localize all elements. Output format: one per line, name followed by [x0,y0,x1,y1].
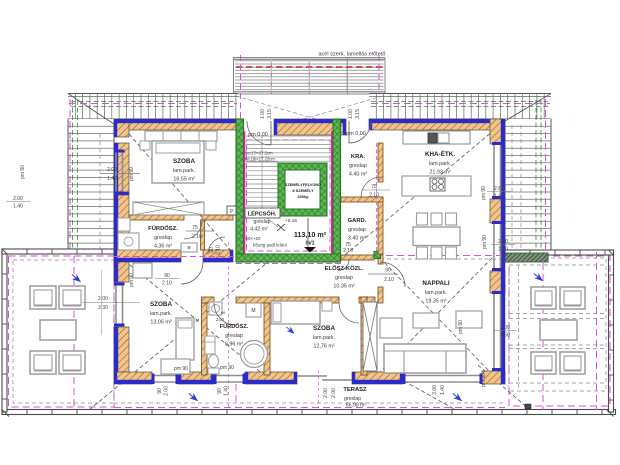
svg-text:+6.15: +6.15 [285,218,297,224]
svg-text:greslap: greslap [349,163,367,169]
svg-text:GARD.: GARD. [348,218,367,224]
svg-text:lam.park.: lam.park. [429,161,451,167]
svg-text:6,96 m²: 6,96 m² [225,342,243,348]
svg-text:KHA-ÉTK.: KHA-ÉTK. [425,149,455,158]
svg-text:2.00: 2.00 [164,386,170,396]
svg-text:1.40: 1.40 [224,386,230,396]
svg-text:2.00: 2.00 [331,388,337,398]
svg-text:2.30: 2.30 [98,305,108,311]
svg-text:2.80: 2.80 [498,239,508,245]
svg-text:fel:18i×17,22cm: fel:18i×17,22cm [245,157,275,162]
svg-text:3.00: 3.00 [500,325,510,331]
svg-text:90: 90 [157,388,163,394]
svg-text:greslap: greslap [225,333,243,339]
svg-text:90: 90 [385,268,391,274]
svg-text:FÜRDŐSZ.: FÜRDŐSZ. [148,225,178,232]
svg-text:pm 90: pm 90 [220,365,234,371]
svg-text:2.00: 2.00 [98,296,108,302]
svg-text:19.35 m²: 19.35 m² [425,299,446,305]
svg-text:3.15: 3.15 [267,109,273,119]
svg-text:M: M [251,308,255,314]
svg-text:12,76 m²: 12,76 m² [313,344,334,350]
svg-text:Ih/1: Ih/1 [306,241,315,247]
svg-text:pm 90: pm 90 [174,366,188,372]
svg-text:lam.park.: lam.park. [313,335,335,341]
svg-text:8 SZEMÉLY: 8 SZEMÉLY [292,188,314,193]
svg-text:1.40: 1.40 [494,194,504,200]
svg-text:lam.park.: lam.park. [173,168,195,174]
svg-text:2.10: 2.10 [369,193,379,199]
svg-text:75: 75 [371,184,377,190]
svg-text:10.35 m²: 10.35 m² [333,284,354,290]
svg-text:1.00: 1.00 [260,109,266,119]
svg-text:pm 90: pm 90 [20,165,26,179]
svg-text:pm 90: pm 90 [458,320,464,334]
svg-text:90: 90 [217,388,223,394]
svg-text:4,42 m²: 4,42 m² [250,227,268,233]
svg-text:pm 90: pm 90 [129,167,135,181]
svg-text:90: 90 [209,247,215,253]
svg-text:FÜRDŐSZ.: FÜRDŐSZ. [220,323,249,330]
svg-text:ELŐSZ-KÖZL.: ELŐSZ-KÖZL. [325,265,364,272]
svg-text:3.00: 3.00 [432,385,438,395]
svg-text:2.10: 2.10 [216,245,222,255]
svg-text:2.10: 2.10 [162,281,172,287]
svg-text:LÉPCSŐH.: LÉPCSŐH. [248,210,277,218]
svg-text:1.00: 1.00 [348,109,354,119]
svg-text:greslap: greslap [154,235,172,241]
svg-text:90: 90 [164,273,170,279]
svg-text:2.00: 2.00 [107,167,117,173]
svg-text:2.00: 2.00 [323,388,329,398]
svg-text:lam.park.: lam.park. [425,290,447,296]
svg-text:pm 90: pm 90 [481,373,487,387]
svg-text:2.10: 2.10 [384,277,394,283]
svg-text:2.50: 2.50 [500,333,510,339]
svg-text:KRA.: KRA. [351,154,366,160]
svg-text:2.60: 2.60 [494,186,504,192]
svg-text:113,10 m²: 113,10 m² [294,230,327,239]
svg-text:lam.park.: lam.park. [150,311,172,317]
svg-text:kőszig padl.feláró: kőszig padl.feláró [253,243,288,248]
svg-text:pm 90: pm 90 [482,235,488,249]
svg-text:SZOBA: SZOBA [150,301,172,308]
svg-text:1.40: 1.40 [107,176,117,182]
svg-text:NAPPALI: NAPPALI [422,280,449,287]
svg-text:16,55 m²: 16,55 m² [173,177,194,183]
svg-text:greslap: greslap [335,275,353,281]
svg-text:1.40: 1.40 [440,385,446,395]
svg-text:TERASZ: TERASZ [343,387,367,393]
svg-text:1.40: 1.40 [13,204,23,210]
svg-text:greslap: greslap [344,396,361,402]
svg-text:SZEMÉLYFELVONÓ: SZEMÉLYFELVONÓ [285,182,322,187]
svg-text:greslap: greslap [348,227,366,233]
svg-text:66,98 m²: 66,98 m² [346,403,367,409]
svg-text:4.40 m²: 4.40 m² [349,172,367,178]
svg-text:gréslap: gréslap [253,219,270,225]
svg-text:pm 0,00: pm 0,00 [346,131,365,137]
svg-text:1.40: 1.40 [498,247,508,253]
svg-text:75: 75 [192,225,198,231]
svg-text:2.00: 2.00 [13,196,23,202]
svg-text:acél szerk. lamellás előtető: acél szerk. lamellás előtető [318,52,385,58]
svg-text:2.10: 2.10 [192,234,202,240]
svg-text:SZOBA: SZOBA [173,158,195,165]
svg-text:3.15: 3.15 [355,109,361,119]
svg-text:3.40 m²: 3.40 m² [348,236,366,242]
svg-text:SZOBA: SZOBA [313,325,335,332]
svg-text:2.10: 2.10 [343,248,353,254]
svg-text:be:17i×27,5cm: be:17i×27,5cm [245,151,273,156]
svg-text:pm 90: pm 90 [129,273,135,287]
svg-text:13,05 m²: 13,05 m² [150,320,171,326]
svg-text:4,36 m²: 4,36 m² [154,244,172,250]
svg-text:60×+20: 60×+20 [246,236,261,241]
svg-text:630kg: 630kg [297,194,309,199]
svg-text:pm 90: pm 90 [481,186,487,200]
svg-text:pm 0,00: pm 0,00 [248,132,267,138]
svg-text:21.93 m²: 21.93 m² [429,170,450,176]
